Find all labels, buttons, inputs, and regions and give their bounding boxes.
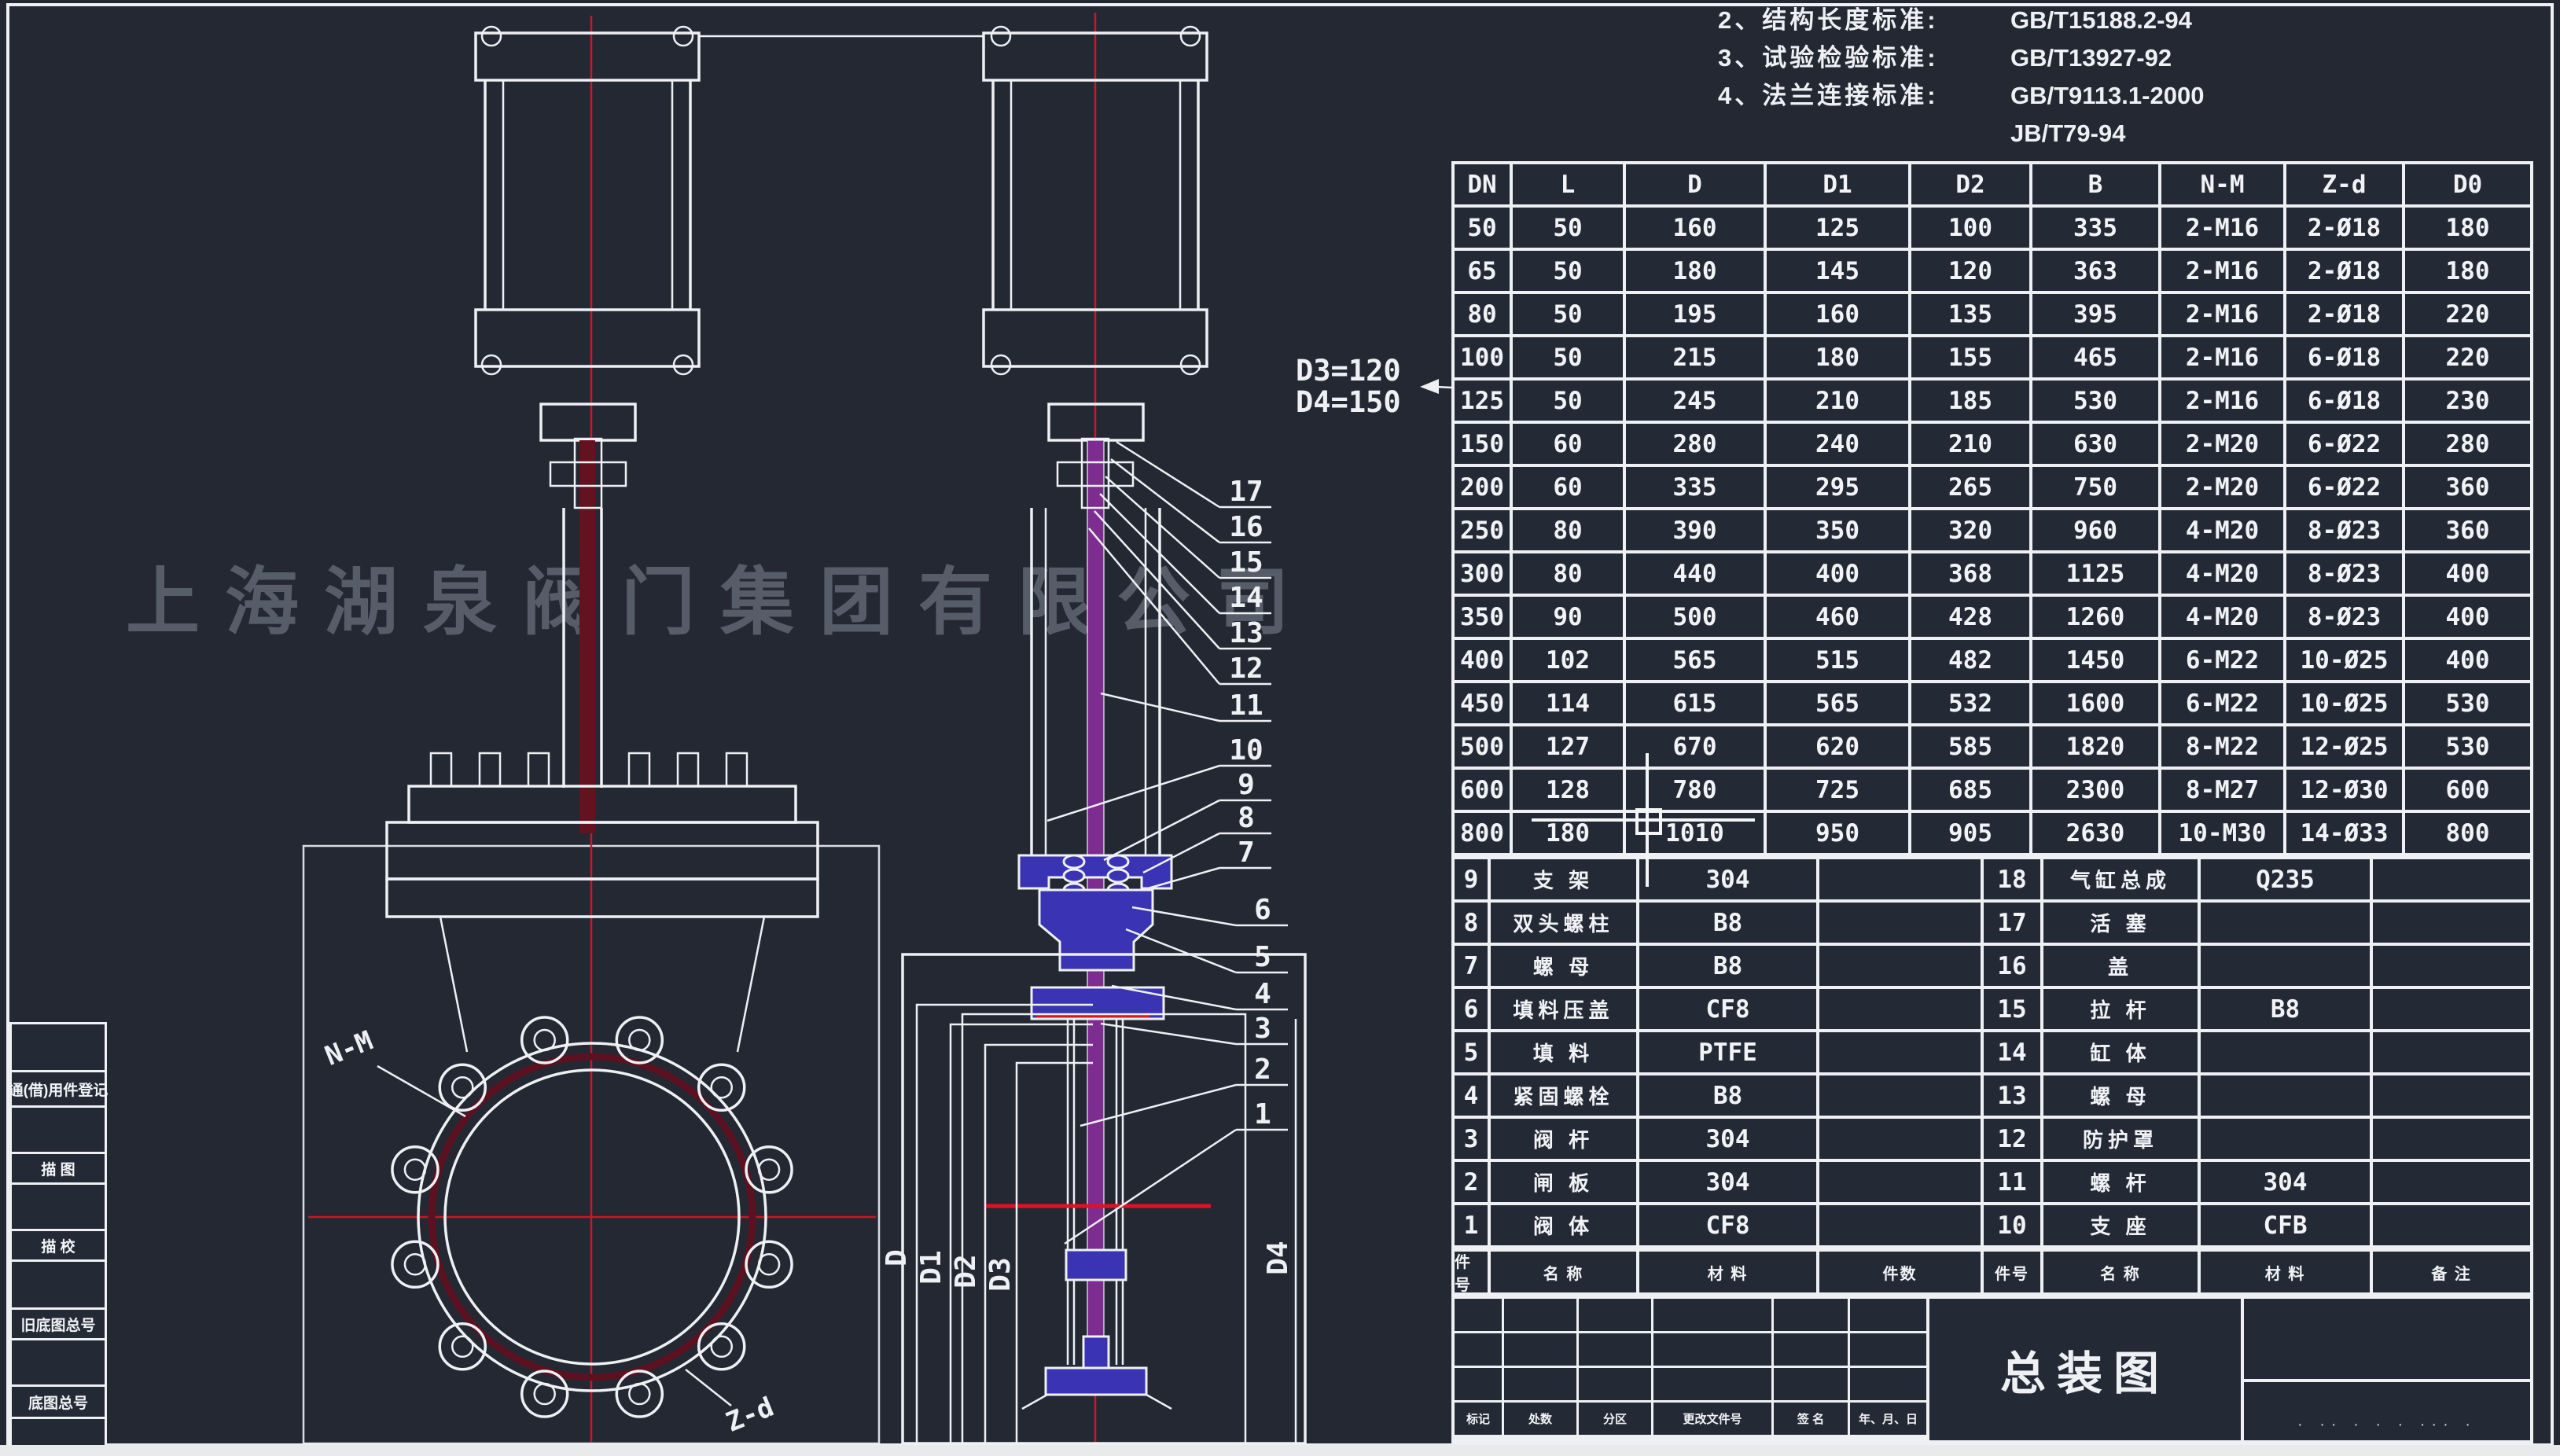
dim-table-cell: 750 [2032, 467, 2158, 507]
dim-table-cell: 335 [2032, 208, 2158, 248]
dim-table-cell: 135 [1911, 294, 2029, 334]
dim-table-cell: 8-Ø23 [2286, 510, 2402, 550]
dim-table-cell: 395 [2032, 294, 2158, 334]
bom-item-material: CFB [2201, 1205, 2370, 1245]
bolt-hole [452, 1077, 473, 1098]
revision-cell [1504, 1333, 1576, 1366]
dim-table-header: D [1626, 164, 1764, 204]
bom-footer-header: 名 称 [2043, 1252, 2198, 1292]
bom-footer-header: 备 注 [2373, 1252, 2530, 1292]
margin-box-blank [9, 1338, 107, 1384]
bom-item-no: 13 [1984, 1075, 2040, 1116]
dim-table-cell: 180 [2405, 208, 2530, 248]
bom-item-qty [1819, 1119, 1981, 1159]
bolt-hole [629, 1030, 649, 1050]
dim-table-cell: 585 [1911, 726, 2029, 767]
dim-table-cell: 210 [1911, 424, 2029, 464]
dim-table-cell: 1820 [2032, 726, 2158, 767]
margin-box-blank [9, 1105, 107, 1152]
bom-item-name: 支 座 [2043, 1205, 2198, 1245]
dim-table-cell: 50 [1513, 208, 1623, 248]
margin-box-label: 描 校 [9, 1229, 107, 1259]
title-block-marks: · ·· · · · ··· · [2244, 1382, 2530, 1440]
dim-table-cell: 127 [1513, 726, 1623, 767]
dim-table-cell: 100 [1455, 337, 1510, 377]
dim-table-cell: 950 [1767, 813, 1908, 853]
dim-table-cell: 50 [1513, 337, 1623, 377]
bom-item-no: 15 [1984, 989, 2040, 1029]
callout-number: 17 [1229, 476, 1263, 508]
bom-item-material [2201, 1119, 2370, 1159]
title-block-box [2244, 1299, 2530, 1382]
dim-table-cell: 50 [1513, 294, 1623, 334]
section-view: D D1 D2 D3 D4 [881, 13, 1305, 1443]
dim-table-cell: 530 [2405, 726, 2530, 767]
bolt-hole [535, 1384, 555, 1404]
bolt-hole [759, 1160, 779, 1180]
flange-lug [616, 1017, 662, 1063]
dim-label-D4: D4 [1262, 1241, 1294, 1274]
bom-footer-header: 件数 [1819, 1252, 1981, 1292]
bom-item-material: PTFE [1639, 1032, 1816, 1072]
dim-table-cell: 2-M16 [2161, 208, 2283, 248]
revision-label: 处数 [1504, 1403, 1576, 1435]
revision-cell [1653, 1333, 1771, 1366]
revision-cell [1653, 1299, 1771, 1331]
flange-lug [699, 1064, 745, 1110]
dim-table-cell: 265 [1911, 467, 2029, 507]
dim-table-cell: 100 [1911, 208, 2029, 248]
dim-table-cell: 145 [1767, 251, 1908, 291]
dim-label-D1: D1 [915, 1250, 947, 1284]
bolt-hole [712, 1077, 732, 1098]
cad-drawing-sheet: 上海湖泉阀门集团有限公司 [0, 0, 2560, 1456]
revision-grid: 标记处数分区更改文件号签 名年、月、日 [1455, 1299, 1926, 1440]
dim-table-cell: 8-M27 [2161, 770, 2283, 810]
spring-coil [1064, 855, 1084, 868]
dim-table-cell: 335 [1626, 467, 1764, 507]
revision-cell [1850, 1368, 1926, 1400]
callout-leader [1104, 800, 1219, 860]
dim-table-cell: 200 [1455, 467, 1510, 507]
bom-item-no: 12 [1984, 1119, 2040, 1159]
dim-table-cell: 80 [1513, 553, 1623, 594]
bom-item-material [2201, 903, 2370, 943]
bom-item-remark [2373, 946, 2530, 986]
bom-item-material: 304 [1639, 1162, 1816, 1202]
dim-table-cell: 400 [2405, 553, 2530, 594]
air-cylinder-front [476, 27, 699, 374]
dim-table-cell: 685 [1911, 770, 2029, 810]
dim-table-cell: 2-Ø18 [2286, 208, 2402, 248]
dim-table-cell: 390 [1626, 510, 1764, 550]
dim-label-D: D [881, 1249, 913, 1267]
dim-table-cell: 60 [1513, 424, 1623, 464]
revision-cell [1774, 1299, 1848, 1331]
bom-item-no: 9 [1455, 859, 1488, 899]
bom-item-name: 填料压盖 [1491, 989, 1636, 1029]
revision-cell [1850, 1333, 1926, 1366]
dim-note-line1: D3=120 [1296, 354, 1401, 388]
dim-table-cell: 60 [1513, 467, 1623, 507]
bom-item-name: 螺 母 [2043, 1075, 2198, 1116]
dim-table-header: Z-d [2286, 164, 2402, 204]
bolt-hole [759, 1254, 779, 1274]
dim-table-cell: 2-M16 [2161, 251, 2283, 291]
flange-lug [616, 1371, 662, 1417]
bom-item-material: CF8 [1639, 989, 1816, 1029]
bom-item-qty [1819, 1162, 1981, 1202]
note-value: JB/T79-94 [2010, 119, 2125, 147]
bom-item-remark [2373, 859, 2530, 899]
dim-table-cell: 180 [2405, 251, 2530, 291]
bom-item-no: 17 [1984, 903, 2040, 943]
revision-cell [1455, 1299, 1502, 1331]
dim-table-cell: 102 [1513, 640, 1623, 680]
bonnet [1039, 890, 1153, 970]
revision-cell [1504, 1299, 1576, 1331]
callout-number: 12 [1229, 653, 1263, 685]
dim-table-header: D0 [2405, 164, 2530, 204]
bom-table: 9支 架30418气缸总成Q2358双头螺柱B817活 塞7螺 母B816盖6填… [1451, 856, 2533, 1248]
bom-item-no: 4 [1455, 1075, 1488, 1116]
dim-table-cell: 460 [1767, 597, 1908, 637]
note-line: 2、结构长度标准:GB/T15188.2-94 [1718, 2, 2204, 39]
revision-label: 标记 [1455, 1403, 1502, 1435]
bom-item-remark [2373, 903, 2530, 943]
dim-table-cell: 240 [1767, 424, 1908, 464]
revision-cell [1850, 1299, 1926, 1331]
bom-item-no: 18 [1984, 859, 2040, 899]
front-view: N-M Z-d [303, 16, 984, 1443]
bom-item-qty [1819, 1032, 1981, 1072]
bom-item-name: 活 塞 [2043, 903, 2198, 943]
dim-table-cell: 90 [1513, 597, 1623, 637]
dim-table-cell: 960 [2032, 510, 2158, 550]
note-value: GB/T9113.1-2000 [2010, 82, 2204, 109]
dim-table-cell: 620 [1767, 726, 1908, 767]
dim-table-cell: 500 [1626, 597, 1764, 637]
bolt-hole-label: Z-d [722, 1392, 778, 1439]
dim-table-header: B [2032, 164, 2158, 204]
dim-table-cell: 65 [1455, 251, 1510, 291]
dim-table-cell: 428 [1911, 597, 2029, 637]
bom-item-material [2201, 1075, 2370, 1116]
dim-table-cell: 600 [1455, 770, 1510, 810]
dim-table-cell: 150 [1455, 424, 1510, 464]
dim-table-cell: 400 [2405, 597, 2530, 637]
bolt-hole [405, 1254, 425, 1274]
dim-table-cell: 220 [2405, 337, 2530, 377]
bolt-hole [535, 1030, 555, 1050]
note-line: 4、法兰连接标准:GB/T9113.1-2000 [1718, 77, 2204, 115]
bom-footer-header: 材 料 [1639, 1252, 1816, 1292]
dim-table-cell: 530 [2405, 683, 2530, 723]
dim-table-cell: 1010 [1626, 813, 1764, 853]
dim-table-cell: 800 [2405, 813, 2530, 853]
dim-table-cell: 2630 [2032, 813, 2158, 853]
flange-lug [746, 1147, 792, 1193]
note-label: 4、法兰连接标准: [1718, 77, 2010, 115]
dim-table-cell: 615 [1626, 683, 1764, 723]
bom-item-remark [2373, 1119, 2530, 1159]
spring-coil [1064, 870, 1084, 882]
dim-table-cell: 8-M22 [2161, 726, 2283, 767]
dim-table-cell: 180 [1767, 337, 1908, 377]
bom-item-qty [1819, 903, 1981, 943]
bom-item-qty [1819, 946, 1981, 986]
dim-table-cell: 10-M30 [2161, 813, 2283, 853]
bom-item-no: 1 [1455, 1205, 1488, 1245]
bom-item-qty [1819, 1205, 1981, 1245]
dim-table-header: D2 [1911, 164, 2029, 204]
title-block: 标记处数分区更改文件号签 名年、月、日 总装图 · ·· · · · ··· · [1451, 1296, 2533, 1443]
bom-item-qty [1819, 1075, 1981, 1116]
dim-table-cell: 1600 [2032, 683, 2158, 723]
dim-table-cell: 210 [1767, 381, 1908, 421]
dim-table-cell: 630 [2032, 424, 2158, 464]
bom-item-name: 螺 母 [1491, 946, 1636, 986]
dim-table-cell: 125 [1455, 381, 1510, 421]
dim-table-cell: 530 [2032, 381, 2158, 421]
bom-item-material: 304 [2201, 1162, 2370, 1202]
dim-table-cell: 50 [1513, 251, 1623, 291]
bolt-thread-label: N-M [321, 1025, 377, 1072]
dim-table-cell: 4-M20 [2161, 553, 2283, 594]
bom-item-no: 8 [1455, 903, 1488, 943]
dim-table-cell: 465 [2032, 337, 2158, 377]
dim-table-cell: 280 [1626, 424, 1764, 464]
dim-table-header: L [1513, 164, 1623, 204]
callout-leader [1105, 476, 1219, 578]
dim-table-cell: 532 [1911, 683, 2029, 723]
dim-table-cell: 6-Ø18 [2286, 337, 2402, 377]
revision-cell [1504, 1368, 1576, 1400]
dim-table-cell: 4-M20 [2161, 597, 2283, 637]
note-label: 3、试验检验标准: [1718, 39, 2010, 77]
dim-label-D2: D2 [950, 1254, 982, 1288]
bom-item-material: B8 [1639, 946, 1816, 986]
bolt-hole [712, 1337, 732, 1357]
arrowhead [1420, 379, 1439, 394]
dim-table-cell: 6-M22 [2161, 640, 2283, 680]
bom-header-row: 件号名 称材 料件数件号名 称材 料备 注 [1451, 1248, 2533, 1296]
dim-table-cell: 6-Ø18 [2286, 381, 2402, 421]
callout-number: 9 [1238, 769, 1255, 801]
bom-item-no: 6 [1455, 989, 1488, 1029]
dim-table-cell: 80 [1513, 510, 1623, 550]
dim-table-cell: 350 [1455, 597, 1510, 637]
dim-table-cell: 725 [1767, 770, 1908, 810]
dim-table-cell: 363 [2032, 251, 2158, 291]
bom-item-material: B8 [1639, 903, 1816, 943]
flange-lug [440, 1324, 485, 1370]
callout-number: 7 [1238, 836, 1255, 869]
bom-item-remark [2373, 1205, 2530, 1245]
dim-table-cell: 600 [2405, 770, 2530, 810]
margin-box-label: 底图总号 [9, 1384, 107, 1417]
flange-lug [522, 1017, 568, 1063]
callout-number: 6 [1254, 894, 1271, 926]
dim-table-cell: 185 [1911, 381, 2029, 421]
margin-box-blank [9, 1259, 107, 1307]
revision-label: 年、月、日 [1850, 1403, 1926, 1435]
dim-table-cell: 295 [1767, 467, 1908, 507]
revision-label: 分区 [1579, 1403, 1651, 1435]
callout-number: 3 [1254, 1013, 1271, 1045]
callout-number: 11 [1229, 689, 1263, 722]
revision-cell [1653, 1368, 1771, 1400]
dim-table-cell: 2-M20 [2161, 424, 2283, 464]
dim-table-cell: 2300 [2032, 770, 2158, 810]
dim-table-cell: 180 [1626, 251, 1764, 291]
dim-table-cell: 10-Ø25 [2286, 640, 2402, 680]
dim-table-header: DN [1455, 164, 1510, 204]
dim-table-cell: 400 [2405, 640, 2530, 680]
dim-table-cell: 565 [1626, 640, 1764, 680]
bom-footer-header: 材 料 [2201, 1252, 2370, 1292]
revision-label: 签 名 [1774, 1403, 1848, 1435]
dim-table-cell: 300 [1455, 553, 1510, 594]
bom-item-material: B8 [2201, 989, 2370, 1029]
callout-leader [1143, 833, 1219, 873]
bom-item-remark [2373, 1162, 2530, 1202]
revision-cell [1455, 1368, 1502, 1400]
dim-table-cell: 280 [2405, 424, 2530, 464]
margin-box-label: 通(借)用件登记 [9, 1070, 107, 1105]
revision-cell [1774, 1333, 1848, 1366]
callout-leader [1126, 929, 1236, 973]
dim-table-cell: 368 [1911, 553, 2029, 594]
dim-table-header: N-M [2161, 164, 2283, 204]
dim-table-cell: 160 [1767, 294, 1908, 334]
revision-cell [1579, 1299, 1651, 1331]
bom-item-material: Q235 [2201, 859, 2370, 899]
title-block-right: · ·· · · · ··· · [2244, 1299, 2530, 1440]
bom-item-material: CF8 [1639, 1205, 1816, 1245]
callout-number: 2 [1254, 1053, 1271, 1086]
bom-item-no: 16 [1984, 946, 2040, 986]
bom-item-no: 11 [1984, 1162, 2040, 1202]
dim-table-cell: 250 [1455, 510, 1510, 550]
bom-item-material: 304 [1639, 1119, 1816, 1159]
dim-table-cell: 2-Ø18 [2286, 251, 2402, 291]
dim-table-cell: 360 [2405, 510, 2530, 550]
dim-table-cell: 6-Ø22 [2286, 467, 2402, 507]
dim-table-cell: 180 [1513, 813, 1623, 853]
bottom-flange [1046, 1368, 1146, 1395]
dim-table-cell: 450 [1455, 683, 1510, 723]
dim-table-cell: 10-Ø25 [2286, 683, 2402, 723]
dim-table-cell: 905 [1911, 813, 2029, 853]
bom-item-material: B8 [1639, 1075, 1816, 1116]
dim-table-cell: 8-Ø23 [2286, 553, 2402, 594]
bom-item-material [2201, 1032, 2370, 1072]
dim-table-cell: 14-Ø33 [2286, 813, 2402, 853]
bom-item-name: 防护罩 [2043, 1119, 2198, 1159]
dim-table-cell: 160 [1626, 208, 1764, 248]
bom-item-name: 螺 杆 [2043, 1162, 2198, 1202]
spring-coil [1108, 870, 1128, 882]
dim-table-cell: 1125 [2032, 553, 2158, 594]
dim-table-cell: 80 [1455, 294, 1510, 334]
callout-number: 8 [1238, 802, 1255, 834]
bom-item-remark [2373, 1075, 2530, 1116]
dim-table-cell: 780 [1626, 770, 1764, 810]
callout-number: 10 [1229, 734, 1263, 767]
callout-leader [1101, 1024, 1236, 1044]
bom-item-name: 阀 杆 [1491, 1119, 1636, 1159]
revision-cell [1455, 1333, 1502, 1366]
bom-item-name: 支 架 [1491, 859, 1636, 899]
flange-lug [699, 1324, 745, 1370]
dim-table-cell: 482 [1911, 640, 2029, 680]
dimension-table: DNLDD1D2BN-MZ-dD050501601251003352-M162-… [1451, 161, 2533, 856]
revision-label: 更改文件号 [1653, 1403, 1771, 1435]
dim-table-cell: 2-M16 [2161, 337, 2283, 377]
flange-lug [746, 1241, 792, 1287]
dim-table-cell: 500 [1455, 726, 1510, 767]
bom-footer-header: 名 称 [1491, 1252, 1636, 1292]
callout-number: 4 [1254, 978, 1271, 1010]
dim-table-cell: 125 [1767, 208, 1908, 248]
dim-table-cell: 400 [1455, 640, 1510, 680]
dim-note-line2: D4=150 [1296, 385, 1401, 419]
revision-cell [1579, 1333, 1651, 1366]
dim-table-cell: 245 [1626, 381, 1764, 421]
bom-item-qty [1819, 859, 1981, 899]
dim-table-cell: 2-M20 [2161, 467, 2283, 507]
dim-table-cell: 220 [2405, 294, 2530, 334]
dim-table-cell: 515 [1767, 640, 1908, 680]
bom-item-no: 2 [1455, 1162, 1488, 1202]
bom-item-material: 304 [1639, 859, 1816, 899]
bom-item-name: 紧固螺栓 [1491, 1075, 1636, 1116]
bom-item-no: 14 [1984, 1032, 2040, 1072]
note-label: 2、结构长度标准: [1718, 2, 2010, 39]
callout-number: 13 [1229, 617, 1263, 649]
bolt-hole [452, 1337, 473, 1357]
dim-table-cell: 8-Ø23 [2286, 597, 2402, 637]
drawing-title-cell: 总装图 [1926, 1299, 2244, 1440]
dim-table-cell: 128 [1513, 770, 1623, 810]
margin-box-label: 描 图 [9, 1152, 107, 1182]
bom-item-name: 盖 [2043, 946, 2198, 986]
dim-table-cell: 4-M20 [2161, 510, 2283, 550]
dim-table-cell: 565 [1767, 683, 1908, 723]
dim-table-cell: 12-Ø30 [2286, 770, 2402, 810]
bom-item-name: 拉 杆 [2043, 989, 2198, 1029]
dim-table-cell: 50 [1513, 381, 1623, 421]
flange-lug [392, 1241, 438, 1287]
margin-box-blank [9, 1182, 107, 1229]
bom-item-name: 填 料 [1491, 1032, 1636, 1072]
dim-table-cell: 1450 [2032, 640, 2158, 680]
bolt-hole [629, 1384, 649, 1404]
callout-number: 16 [1229, 511, 1263, 543]
margin-box-blank [9, 1022, 107, 1070]
callout-number: 15 [1229, 546, 1263, 579]
callout-leader [1047, 766, 1219, 821]
bom-item-name: 双头螺柱 [1491, 903, 1636, 943]
part-callouts: 1716151413121110987654321 [1047, 442, 1288, 1244]
dim-table-cell: 2-M16 [2161, 294, 2283, 334]
revision-cell [1774, 1368, 1848, 1400]
bom-item-name: 阀 体 [1491, 1205, 1636, 1245]
bom-item-remark [2373, 1032, 2530, 1072]
callout-number: 1 [1254, 1098, 1271, 1131]
bom-item-no: 7 [1455, 946, 1488, 986]
